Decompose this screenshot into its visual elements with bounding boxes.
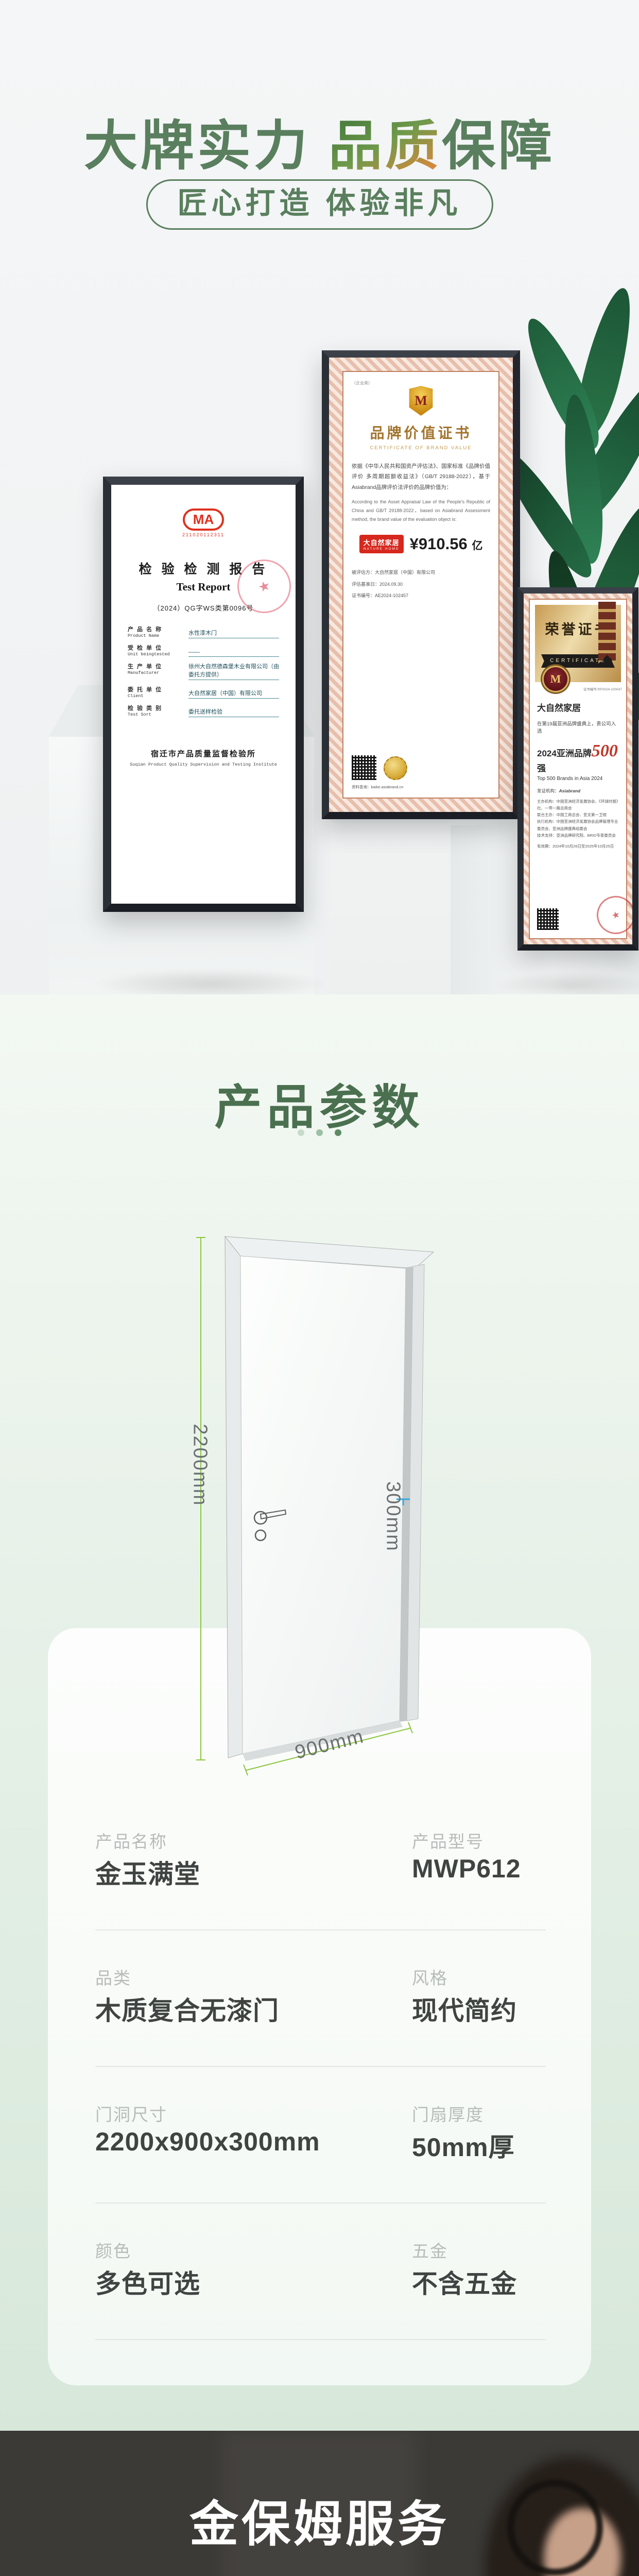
institute: 宿迁市产品质量监督检验所 [125,748,282,759]
spec-value: 2200x900x300mm [95,2127,320,2157]
dot [335,1129,341,1136]
hero-title: 大牌实力 品质保障 [0,102,639,180]
report-field: 产 品 名 称Product Name 水性漆木门 [128,625,279,638]
divider [95,1929,546,1930]
service-title: 金保姆服务 [0,2485,639,2555]
honor-issuer: 发证机构： [537,788,559,793]
spec-label: 风格 [412,1964,448,1989]
spec-label: 产品名称 [95,1828,167,1853]
honor-award-en: Top 500 Brands in Asia 2024 [537,776,620,782]
spec-value: 木质复合无漆门 [95,1990,279,2027]
spec-value: 不含五金 [412,2263,517,2300]
brand-value-subtitle: CERTIFICATE OF BRAND VALUE [352,445,490,451]
service-section: 金保姆服务 全国1000+实体门店支持 咨询下单 › 上门量尺 › [0,2431,639,2576]
spec-value: 50mm厚 [412,2127,515,2164]
institute-en: Suqian Product Quality Supervision and T… [125,762,282,767]
report-field: 检 验 类 别Test Sort 委托送样检验 [128,704,279,717]
hero-title-gradient: 品质 [329,116,442,176]
honor-org-line: 执行机构：中国亚洲经济发展协会品牌管理专业委员会、亚洲品牌盛典组委会 [537,818,620,832]
hero-title-right: 保障 [442,116,555,176]
cma-logo: MA [183,509,224,531]
brand-value-shield-logo: M [408,386,435,416]
honor-validity: 有效期：2024年10月26日至2025年10月25日 [537,843,620,850]
spec-label: 颜色 [95,2238,131,2262]
spec-label: 门洞尺寸 [95,2101,167,2126]
divider [95,2066,546,2067]
brand-value-unit: 亿 [472,540,482,552]
nature-home-logo: 大自然家居 NATURE HOME [359,535,404,553]
spec-value: 多色可选 [95,2263,200,2300]
brand-value-body-cn: 依据《中华人民共和国资产评估法》、国家标准《品牌价值评价 多周期超额收益法》（G… [352,461,490,493]
corner-tag: （企业类） [352,380,490,386]
certificate-honor: 荣誉证书 CERTIFICATE M 证书编号:RP2024-100047 大自… [517,587,638,951]
honor-gold-panel: 荣誉证书 CERTIFICATE M [535,605,621,682]
door-diagram [0,1231,639,1814]
honor-ribbon [598,602,616,664]
params-section: 产品参数 2200mm 300mm 90 [0,994,639,2431]
dot [298,1129,304,1136]
report-field: 生 产 单 位Manufacturer 徐州大自然德森堡木业有限公司（由委托方提… [128,662,279,680]
spec-value: 金玉满堂 [95,1854,200,1891]
brand-value-date: 评估基准日：2024.09.30 [352,579,490,590]
certificate-brand-value: （企业类） M 品牌价值证书 CERTIFICATE OF BRAND VALU… [322,350,520,819]
door-height-label: 2200mm [189,1424,211,1496]
spec-value: MWP612 [412,1854,521,1884]
honor-line1: 在第19届亚洲品牌盛典上，贵公司入选 [537,720,620,734]
brand-value-amount: ¥910.56 [410,535,468,553]
honor-org-line: 联合主办：中国工商总会、亚太第一卫视 [537,811,620,818]
brand-value-title: 品牌价值证书 [352,422,490,443]
brand-value-cert-no: 证书编号：AE2024-102457 [352,590,490,602]
brand-value-holder: 被评估方：大自然家居（中国）有限公司 [352,567,490,579]
gold-seal [384,756,407,780]
hero-title-left: 大牌实力 [84,116,310,176]
spec-label: 品类 [95,1964,131,1989]
honor-cert-no: 证书编号:RP2024-100047 [530,686,622,691]
hero-section: 大牌实力 品质保障 匠心打造 体验非凡 MA 211020112311 检 验 … [0,0,639,994]
honor-org-line: 主办机构：中国亚洲经济发展协会、《环球时报》社、一带一路总商会 [537,798,620,811]
spec-label: 五金 [412,2238,448,2262]
honor-award: 2024亚洲品牌 [537,749,592,758]
cma-number: 211020112311 [125,532,282,537]
brand-value-site: 资料查询：baike.asiabrand.cn [352,784,403,790]
report-field: 委 托 单 位Client 大自然家居（中国）有限公司 [128,685,279,699]
divider [95,2339,546,2340]
honor-org-line: 技术支持：亚洲品牌研究院、BRID专家委员会 [537,832,620,839]
params-title: 产品参数 [0,1069,639,1138]
dot [316,1129,323,1136]
brand-value-body-en: According to the Asset Appraisal Law of … [352,498,490,523]
spec-label: 产品型号 [412,1828,484,1853]
qr-code [537,908,559,930]
honor-brand: 大自然家居 [537,701,620,714]
spec-value: 现代简约 [412,1990,517,2027]
door-depth-label: 300mm [382,1478,404,1555]
red-stamp: ★ [592,891,632,939]
qr-code [352,755,376,780]
certificate-test-report: MA 211020112311 检 验 检 测 报 告 Test Report … [103,477,304,912]
hero-subtitle-pill: 匠心打造 体验非凡 [146,179,493,230]
spec-label: 门扇厚度 [412,2101,484,2126]
divider [95,2202,546,2204]
report-field: 受 检 单 位Unit beingtested —— [128,643,279,657]
